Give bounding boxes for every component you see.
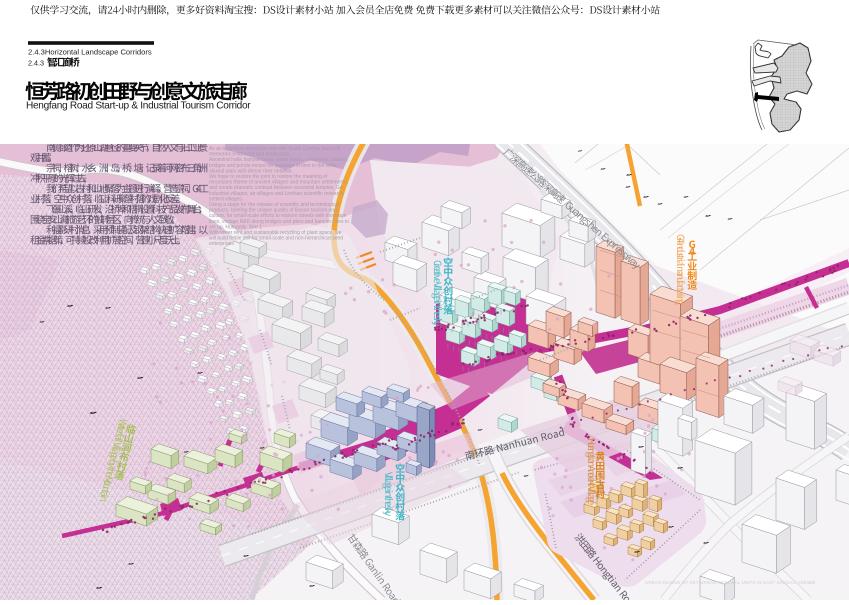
svg-text:URBAN DESIGN OF KEY URBAN RENE: URBAN DESIGN OF KEY URBAN RENEWAL UNITS … — [645, 580, 810, 585]
svg-text:2.4.3: 2.4.3 — [28, 59, 44, 68]
svg-text:2.4.3Horizontal Landscape Corr: 2.4.3Horizontal Landscape Corridors — [28, 48, 152, 57]
svg-text:100: 100 — [808, 580, 816, 585]
svg-text:Hengfang Road Start-up & Indus: Hengfang Road Start-up & Industrial Tour… — [26, 101, 251, 112]
svg-text:enterprises.: enterprises. — [209, 241, 235, 247]
